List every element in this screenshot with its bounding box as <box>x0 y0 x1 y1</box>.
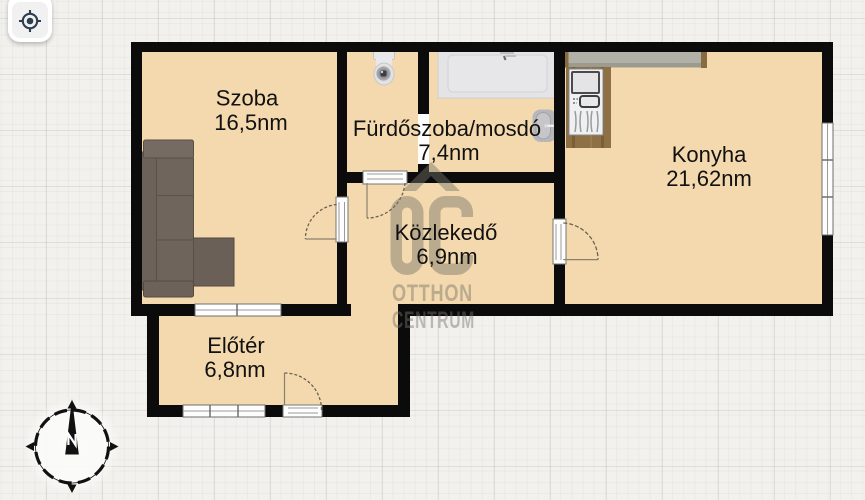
svg-text:OTTHON: OTTHON <box>392 280 473 307</box>
svg-text:21,62nm: 21,62nm <box>666 166 752 191</box>
svg-text:Szoba: Szoba <box>216 86 279 111</box>
svg-text:7,4nm: 7,4nm <box>418 140 479 165</box>
svg-text:Fürdőszoba/mosdó: Fürdőszoba/mosdó <box>353 116 541 141</box>
svg-text:6,9nm: 6,9nm <box>416 244 477 269</box>
svg-text:Előtér: Előtér <box>207 333 264 358</box>
svg-text:16,5nm: 16,5nm <box>214 110 287 135</box>
svg-text:CENTRUM: CENTRUM <box>392 307 475 334</box>
svg-text:Konyha: Konyha <box>672 142 747 167</box>
svg-text:6,8nm: 6,8nm <box>204 357 265 382</box>
svg-text:Közlekedő: Közlekedő <box>395 220 498 245</box>
